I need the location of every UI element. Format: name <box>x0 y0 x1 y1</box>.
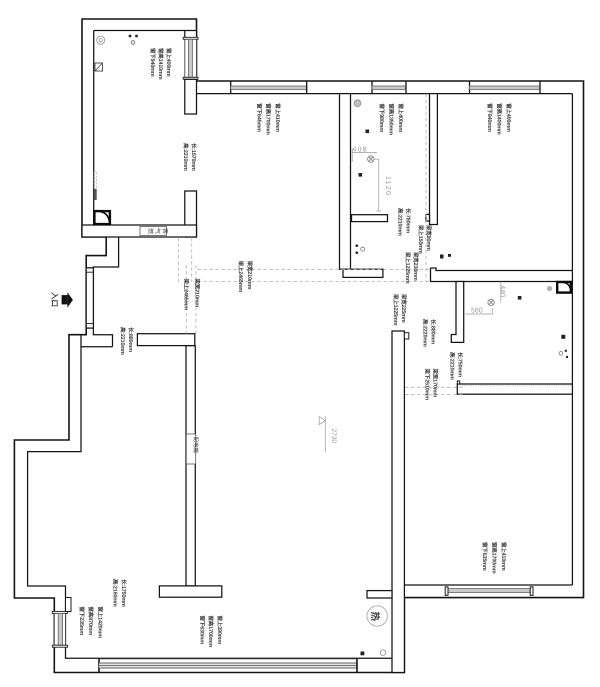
svg-text:梁宽170mm: 梁宽170mm <box>432 368 439 398</box>
svg-text:梁宽225mm: 梁宽225mm <box>400 293 407 323</box>
svg-text:表: 表 <box>161 228 169 234</box>
svg-text:窗上390mm: 窗上390mm <box>216 616 223 645</box>
svg-text:入口: 入口 <box>50 292 59 307</box>
svg-text:窗上1420mm: 窗上1420mm <box>96 607 103 639</box>
svg-text:梁上2465mm: 梁上2465mm <box>183 278 190 311</box>
svg-text:长:1570mm: 长:1570mm <box>190 143 197 171</box>
svg-text:1120: 1120 <box>384 176 391 196</box>
svg-text:窗高1700mm: 窗高1700mm <box>207 616 214 648</box>
svg-text:窗高1350mm: 窗高1350mm <box>388 104 395 136</box>
svg-text:窗下645mm: 窗下645mm <box>255 103 262 132</box>
svg-text:高:2210mm: 高:2210mm <box>119 327 126 355</box>
svg-text:高:2210mm: 高:2210mm <box>449 352 456 380</box>
svg-text:梁上2465mm: 梁上2465mm <box>237 260 244 293</box>
svg-text:窗下940mm: 窗下940mm <box>149 48 156 77</box>
svg-text:长:880mm: 长:880mm <box>430 319 437 344</box>
svg-text:长:1750mm: 长:1750mm <box>120 579 127 607</box>
svg-text:窗上400mm: 窗上400mm <box>165 48 172 77</box>
svg-text:窗上410mm: 窗上410mm <box>500 542 507 571</box>
svg-text:梁上1225mm: 梁上1225mm <box>404 251 411 284</box>
svg-text:2730: 2730 <box>330 429 337 444</box>
svg-text:梁宽230mm: 梁宽230mm <box>412 251 419 281</box>
svg-text:窗上410mm: 窗上410mm <box>274 103 281 132</box>
svg-text:窗高1700mm: 窗高1700mm <box>265 103 272 135</box>
svg-text:560: 560 <box>471 307 483 314</box>
svg-text:梁宽210mm: 梁宽210mm <box>194 278 201 308</box>
svg-text:窗高1410mm: 窗高1410mm <box>157 48 164 80</box>
svg-text:窗高870mm: 窗高870mm <box>87 607 94 636</box>
svg-text:窗下635mm: 窗下635mm <box>481 542 488 571</box>
svg-text:梁上1225mm: 梁上1225mm <box>392 293 399 326</box>
svg-text:气: 气 <box>154 228 162 234</box>
svg-text:燃: 燃 <box>147 228 155 234</box>
svg-text:窗上400mm: 窗上400mm <box>397 104 404 133</box>
svg-text:高:2210mm: 高:2210mm <box>397 208 404 236</box>
svg-text:窗下940mm: 窗下940mm <box>486 103 493 132</box>
svg-text:高:2220mm: 高:2220mm <box>422 319 429 347</box>
svg-text:梁下2510mm: 梁下2510mm <box>424 368 431 401</box>
svg-text:408: 408 <box>353 147 368 154</box>
svg-text:440: 440 <box>499 285 506 297</box>
svg-text:窗上400mm: 窗上400mm <box>505 103 512 132</box>
svg-text:长:750mm: 长:750mm <box>457 352 464 377</box>
svg-text:高:2210mm: 高:2210mm <box>182 143 189 171</box>
svg-text:梁宽80mm: 梁宽80mm <box>425 224 432 251</box>
svg-text:窗下980mm: 窗下980mm <box>378 104 385 133</box>
svg-text:窗高1700mm: 窗高1700mm <box>491 542 498 574</box>
svg-text:窗下235mm: 窗下235mm <box>78 607 85 636</box>
svg-text:配电箱: 配电箱 <box>192 437 199 454</box>
svg-text:窗高1400mm: 窗高1400mm <box>496 103 503 135</box>
svg-text:窗下630mm: 窗下630mm <box>198 616 205 645</box>
svg-text:梁上150mm: 梁上150mm <box>417 224 424 254</box>
svg-text:长:780mm: 长:780mm <box>405 208 412 233</box>
svg-text:热: 热 <box>369 612 381 622</box>
svg-text:梁宽210mm: 梁宽210mm <box>246 260 253 290</box>
svg-text:高:2160mm: 高:2160mm <box>111 579 118 607</box>
svg-text:长:880mm: 长:880mm <box>127 327 134 352</box>
